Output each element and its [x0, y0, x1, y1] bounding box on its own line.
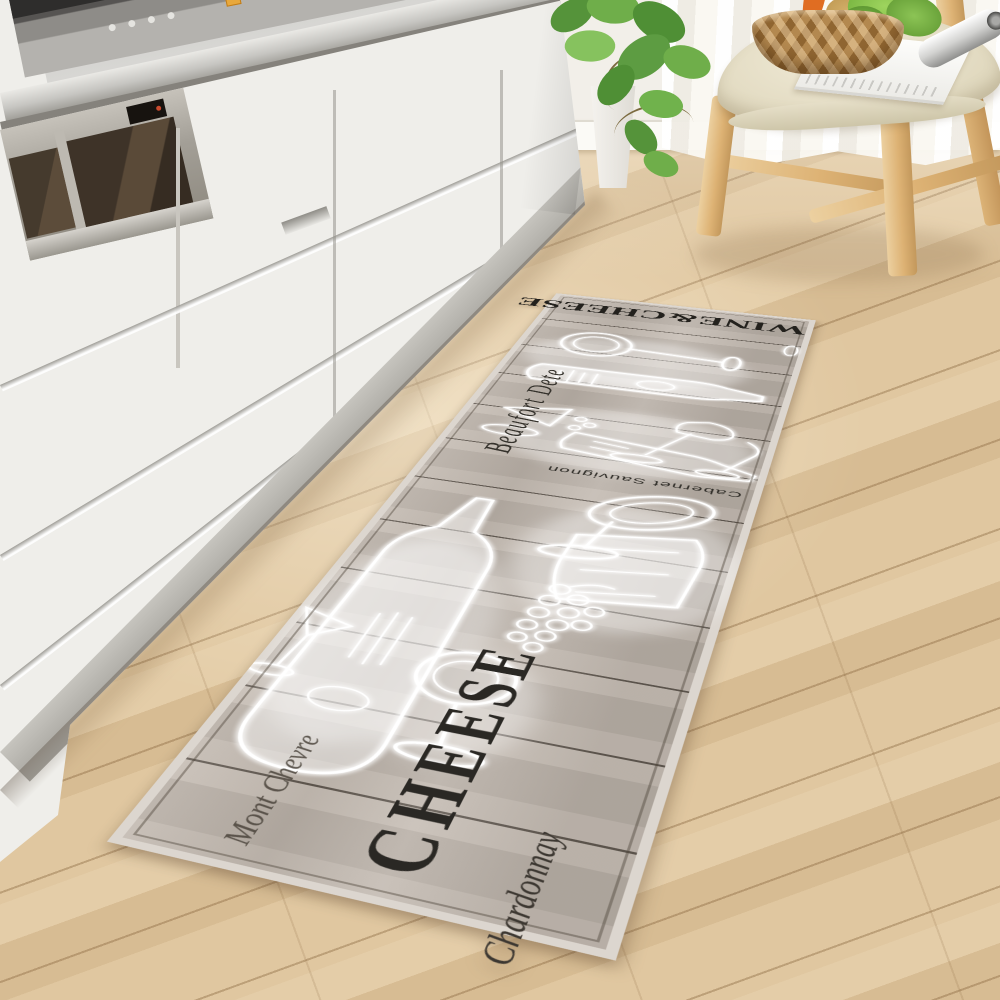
cooktop-label — [224, 0, 241, 7]
woven-bowl — [752, 10, 904, 74]
vegetable-basket — [752, 0, 917, 82]
kitchen-photo: WINE&CHEESE Beaufort Dete Cabernet Sauvi… — [0, 0, 1000, 1000]
drawer-handle — [281, 206, 331, 235]
